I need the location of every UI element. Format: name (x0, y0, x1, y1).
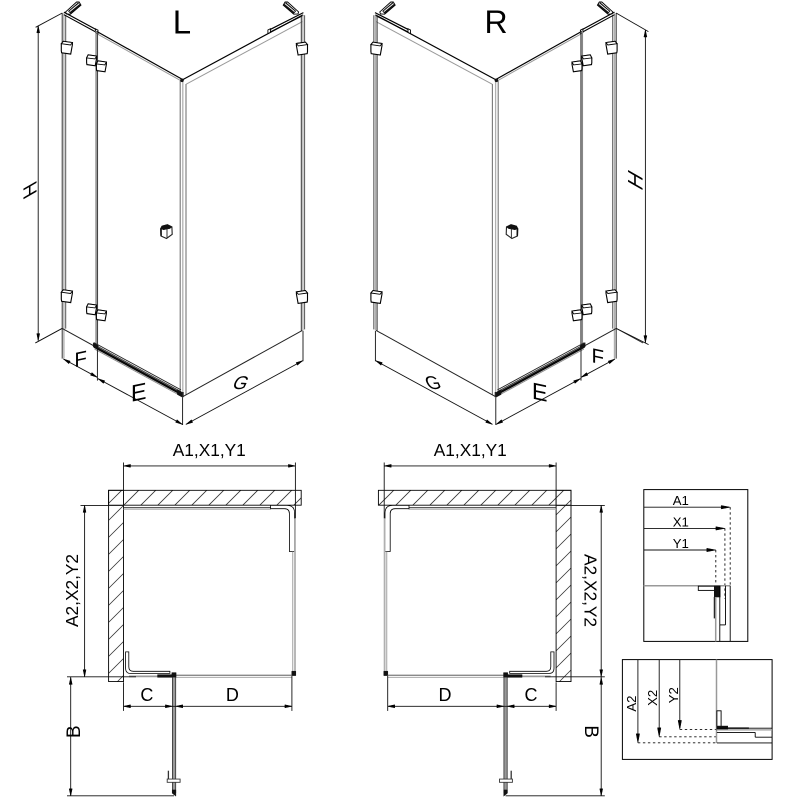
svg-text:A1,X1,Y1: A1,X1,Y1 (434, 440, 507, 460)
svg-text:C: C (525, 685, 538, 705)
svg-text:A2,X2,Y2: A2,X2,Y2 (62, 554, 82, 627)
svg-text:Y1: Y1 (673, 536, 689, 551)
svg-text:F: F (74, 347, 87, 372)
svg-text:E: E (532, 378, 548, 408)
svg-text:X2: X2 (645, 690, 660, 706)
svg-text:D: D (226, 685, 239, 705)
svg-text:L: L (173, 4, 191, 41)
svg-text:A2: A2 (624, 696, 639, 712)
svg-text:C: C (140, 685, 153, 705)
svg-text:E: E (131, 378, 147, 408)
svg-text:A1: A1 (673, 493, 689, 508)
svg-text:B: B (64, 725, 85, 738)
svg-text:F: F (592, 344, 605, 369)
svg-text:A1,X1,Y1: A1,X1,Y1 (173, 440, 246, 460)
svg-text:A2,X2,Y2: A2,X2,Y2 (581, 554, 601, 627)
svg-text:B: B (580, 725, 601, 738)
svg-text:R: R (485, 4, 508, 40)
svg-text:Y2: Y2 (666, 687, 681, 703)
svg-text:D: D (439, 685, 452, 705)
svg-text:X1: X1 (673, 514, 689, 529)
